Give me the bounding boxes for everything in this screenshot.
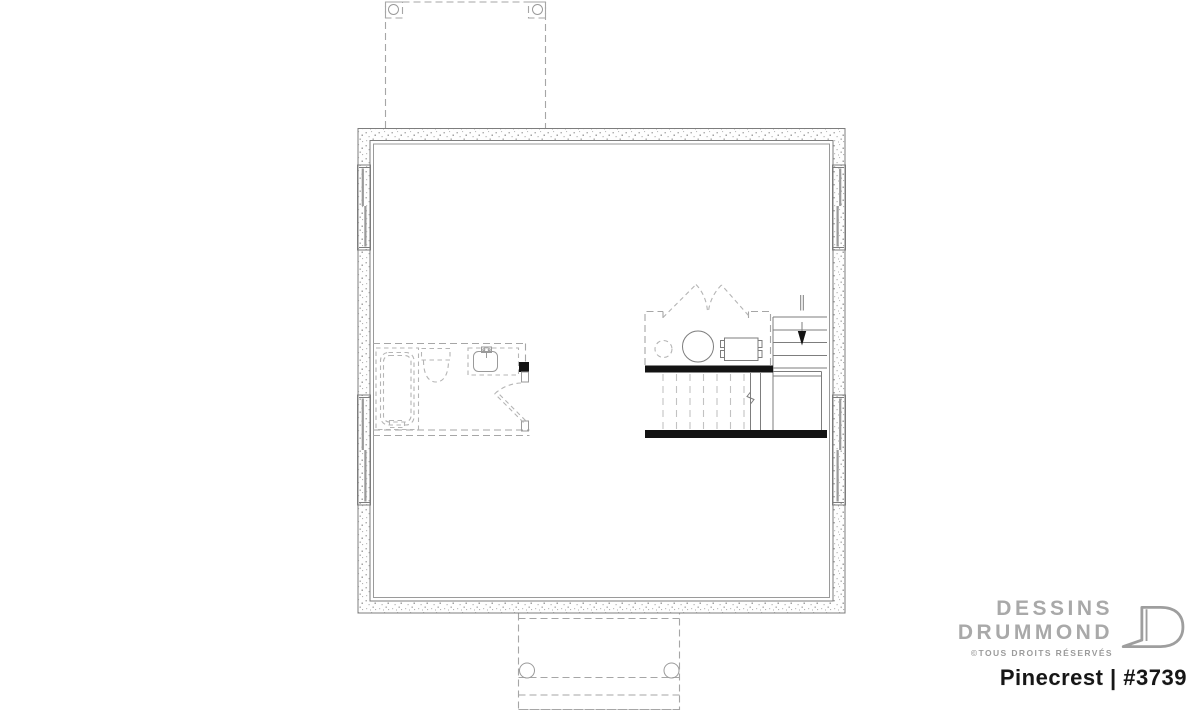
- water-heater-icon: [683, 331, 714, 362]
- floor-drain-icon: [655, 341, 672, 358]
- brand-line2: DRUMMOND: [958, 621, 1113, 645]
- bathtub-icon: [376, 348, 419, 430]
- porch-post-icon: [520, 663, 535, 678]
- porch-post-icon: [389, 5, 399, 15]
- floor-plan-page: DESSINS DRUMMOND ©TOUS DROITS RÉSERVÉS P…: [0, 0, 1200, 711]
- future-bathroom: [373, 344, 530, 436]
- foundation-windows: [358, 165, 846, 505]
- sink-vanity-icon: [468, 347, 519, 375]
- brand-line1: DESSINS: [958, 597, 1113, 621]
- door-swing-icon: [495, 383, 526, 423]
- bifold-doors-icon: [663, 285, 749, 318]
- bearing-wall-lower: [645, 430, 827, 438]
- door-jamb: [522, 372, 529, 382]
- wall-stub-post: [519, 362, 529, 372]
- porch-post-icon: [533, 5, 543, 15]
- stairs-overhead-dashed: [663, 374, 744, 429]
- copyright-text: ©TOUS DROITS RÉSERVÉS: [958, 648, 1113, 658]
- porch-post-icon: [664, 663, 679, 678]
- plan-title: Pinecrest | #3739: [958, 665, 1187, 691]
- staircase: [663, 295, 827, 430]
- bearing-wall-upper: [645, 366, 773, 373]
- furnace-icon: [721, 338, 763, 361]
- drummond-d-logo-icon: [1121, 599, 1187, 655]
- stairs-down-arrow-icon: [798, 295, 806, 346]
- porch-above-top: [386, 2, 546, 128]
- title-block: DESSINS DRUMMOND ©TOUS DROITS RÉSERVÉS P…: [958, 597, 1187, 691]
- mechanical-closet: [645, 285, 771, 366]
- toilet-icon: [422, 349, 451, 383]
- porch-below-bottom: [519, 614, 680, 710]
